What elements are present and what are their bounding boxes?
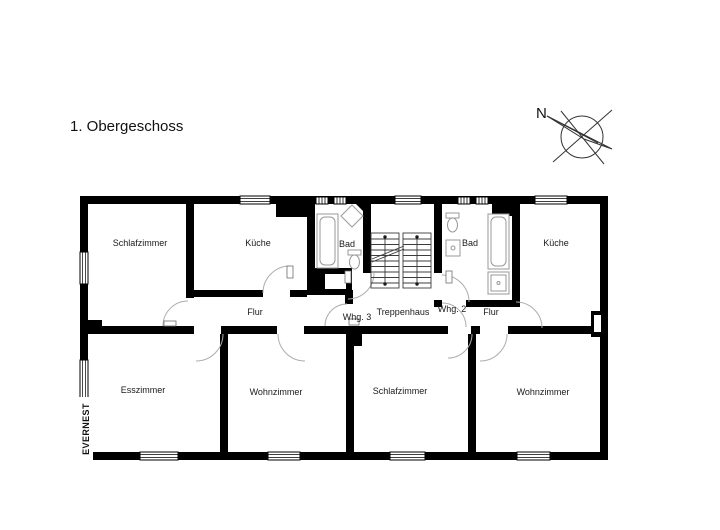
- window: [535, 196, 567, 204]
- corner-sink: [341, 205, 363, 227]
- compass-rose: N: [536, 105, 612, 164]
- window: [240, 196, 270, 204]
- door-leaf: [287, 266, 293, 278]
- wall-niche: [591, 311, 603, 337]
- chimney-block: [276, 196, 308, 217]
- bathtub: [488, 214, 509, 269]
- room-label-esszimmer: Esszimmer: [121, 385, 166, 395]
- label-whg-3: Whg. 3: [343, 312, 372, 322]
- sink: [446, 240, 460, 256]
- toilet: [446, 213, 459, 232]
- floor-plan-page: 1. Obergeschoss N: [0, 0, 720, 530]
- bathtub: [317, 214, 338, 268]
- door-arc: [278, 334, 305, 361]
- room-label-kueche-left: Küche: [245, 238, 271, 248]
- watermark-text: EVERNEST: [81, 403, 91, 455]
- small-window: [458, 197, 470, 204]
- room-label-flur-left: Flur: [247, 307, 263, 317]
- room-label-bad-right: Bad: [462, 238, 478, 248]
- wall-pillar: [88, 320, 102, 334]
- room-label-treppenhaus: Treppenhaus: [377, 307, 430, 317]
- small-window: [476, 197, 488, 204]
- small-window: [334, 197, 346, 204]
- page-title: 1. Obergeschoss: [70, 118, 183, 135]
- room-label-flur-right: Flur: [483, 307, 499, 317]
- door-arc: [263, 266, 290, 293]
- window: [517, 452, 550, 460]
- room-label-wohnzimmer-left: Wohnzimmer: [250, 387, 303, 397]
- shower: [488, 272, 509, 294]
- floor-plan-drawing: 1. Obergeschoss N: [0, 0, 720, 530]
- room-label-schlafzimmer-top-left: Schlafzimmer: [113, 238, 168, 248]
- label-whg-2: Whg. 2: [438, 304, 467, 314]
- wall-pillar: [346, 334, 362, 346]
- window: [80, 360, 88, 398]
- door-leaf: [164, 321, 176, 326]
- compass-north-label: N: [536, 105, 547, 122]
- door-leaf: [345, 271, 351, 283]
- window: [268, 452, 300, 460]
- window: [140, 452, 178, 460]
- staircase: [371, 233, 431, 288]
- watermark: EVERNEST: [79, 397, 93, 461]
- window: [390, 452, 425, 460]
- door-arc: [196, 334, 223, 361]
- window: [395, 196, 421, 204]
- small-window: [316, 197, 328, 204]
- room-label-kueche-right: Küche: [543, 238, 569, 248]
- toilet: [348, 250, 361, 269]
- door-leaf: [446, 271, 452, 283]
- room-label-schlafzimmer-bottom: Schlafzimmer: [373, 386, 428, 396]
- room-label-bad-left: Bad: [339, 239, 355, 249]
- door-arc: [480, 334, 507, 361]
- room-label-wohnzimmer-right: Wohnzimmer: [517, 387, 570, 397]
- window: [80, 252, 88, 284]
- chimney-block: [492, 196, 514, 216]
